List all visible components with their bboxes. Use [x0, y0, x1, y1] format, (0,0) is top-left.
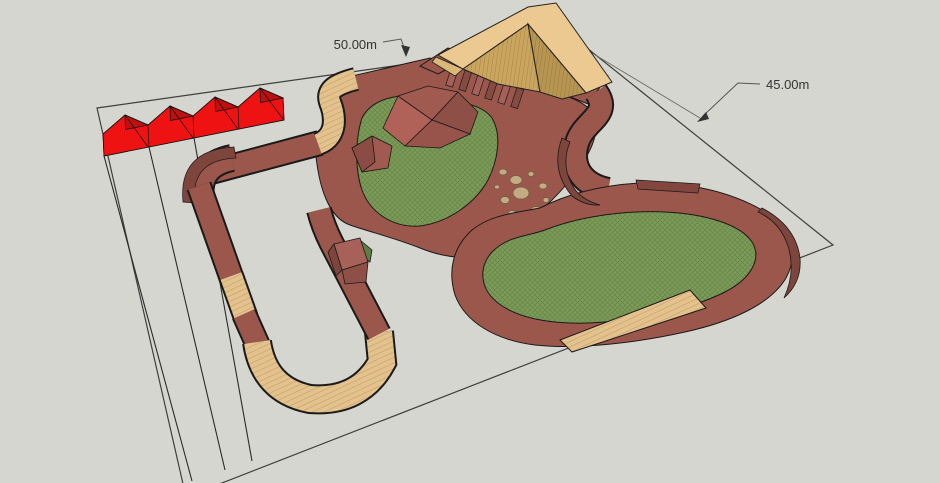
- width-dimension-label: 50.00m: [334, 37, 377, 52]
- width-dimension-arrow-icon: [401, 45, 410, 57]
- model-viewport[interactable]: 50.00m 45.00m: [0, 0, 940, 483]
- wood-section-left: [231, 276, 246, 318]
- depth-dimension-label: 45.00m: [766, 77, 809, 92]
- depth-dimension-leader: [703, 83, 760, 116]
